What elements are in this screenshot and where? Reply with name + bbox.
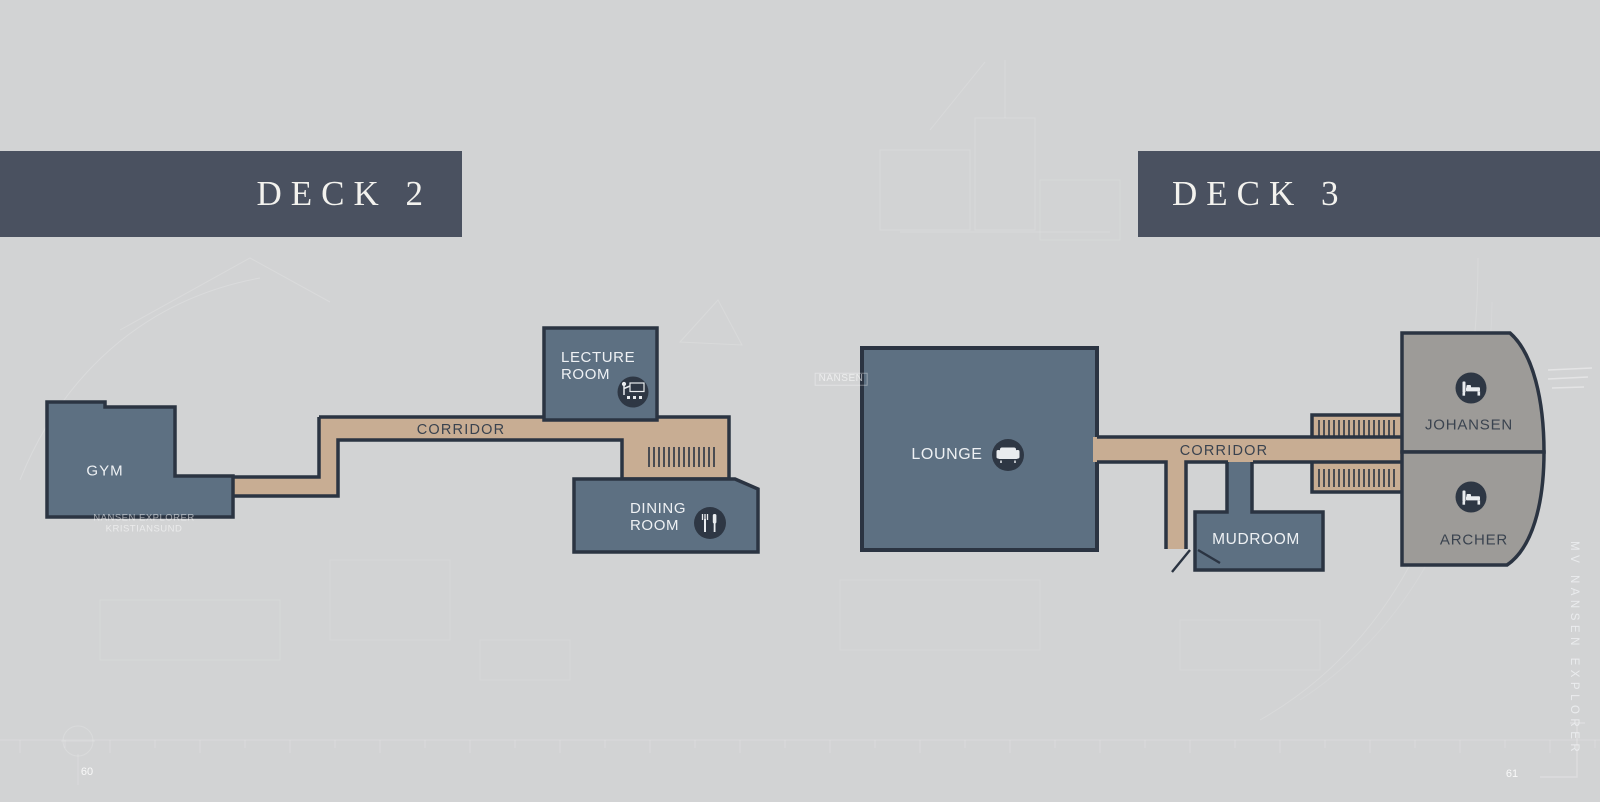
deck-plan-page: DECK 2 DECK 3 GYM CORRIDOR LECTURE ROOM … <box>0 0 1600 802</box>
lecture-room-label: LECTURE ROOM <box>561 350 635 383</box>
hull-name-watermark: NANSEN <box>815 373 868 386</box>
lounge-label: LOUNGE <box>911 446 982 464</box>
mudroom-label: MUDROOM <box>1212 531 1300 549</box>
deck2-corridor-label: CORRIDOR <box>417 422 506 438</box>
builder-watermark: NANSEN EXPLORER KRISTIANSUND <box>93 514 194 535</box>
deck3-title: DECK 3 <box>1172 174 1348 214</box>
bed-icon <box>1456 373 1487 404</box>
johansen-cabin-label: JOHANSEN <box>1425 417 1513 434</box>
right-page-number: 61 <box>1506 768 1518 780</box>
dining-room-label: DINING ROOM <box>630 501 686 534</box>
deck3-corridor-label: CORRIDOR <box>1180 443 1269 459</box>
deck-plan-canvas <box>0 0 1600 802</box>
left-page-number: 60 <box>81 766 93 778</box>
archer-cabin-label: ARCHER <box>1440 532 1508 549</box>
mudroom-shape <box>1195 462 1323 570</box>
sofa-icon <box>992 439 1024 471</box>
gym-label: GYM <box>86 463 123 480</box>
deck3-header-bar: DECK 3 <box>1138 151 1600 237</box>
bed-icon <box>1456 482 1487 513</box>
cutlery-icon <box>694 507 726 539</box>
deck2-header-bar: DECK 2 <box>0 151 462 237</box>
deck2-title: DECK 2 <box>256 174 432 214</box>
ship-name-side-caption: MV NANSEN EXPLORER <box>1568 541 1580 741</box>
gym-room-shape <box>47 402 233 517</box>
